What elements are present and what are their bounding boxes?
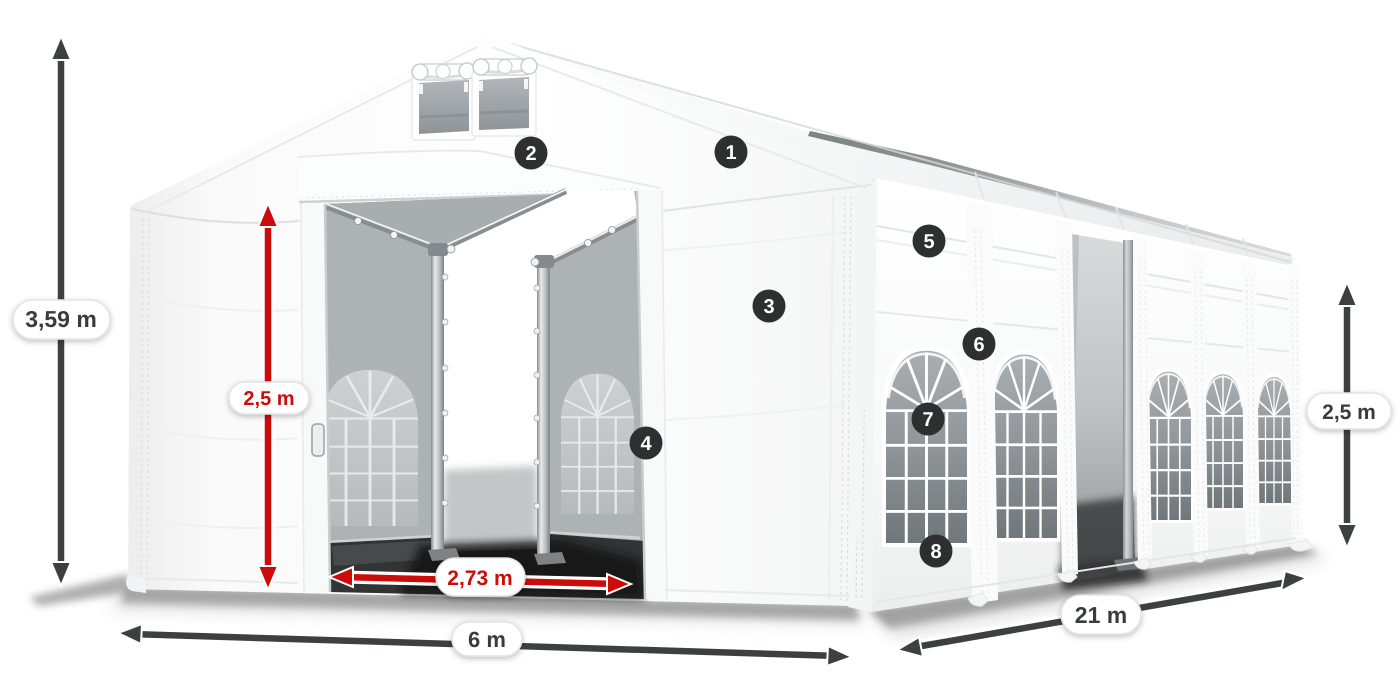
svg-text:2: 2: [525, 143, 536, 165]
svg-text:2,5 m: 2,5 m: [243, 388, 294, 410]
svg-text:5: 5: [923, 231, 934, 253]
svg-text:3: 3: [763, 296, 774, 318]
svg-text:6: 6: [973, 334, 984, 356]
svg-text:2,73 m: 2,73 m: [447, 567, 512, 590]
svg-text:6 m: 6 m: [468, 627, 506, 652]
svg-text:1: 1: [725, 142, 736, 164]
svg-text:2,5 m: 2,5 m: [1322, 401, 1376, 424]
svg-text:21 m: 21 m: [1075, 602, 1127, 628]
svg-text:4: 4: [640, 433, 652, 455]
svg-text:3,59 m: 3,59 m: [25, 306, 97, 332]
svg-text:8: 8: [930, 541, 941, 563]
svg-text:7: 7: [922, 409, 933, 431]
